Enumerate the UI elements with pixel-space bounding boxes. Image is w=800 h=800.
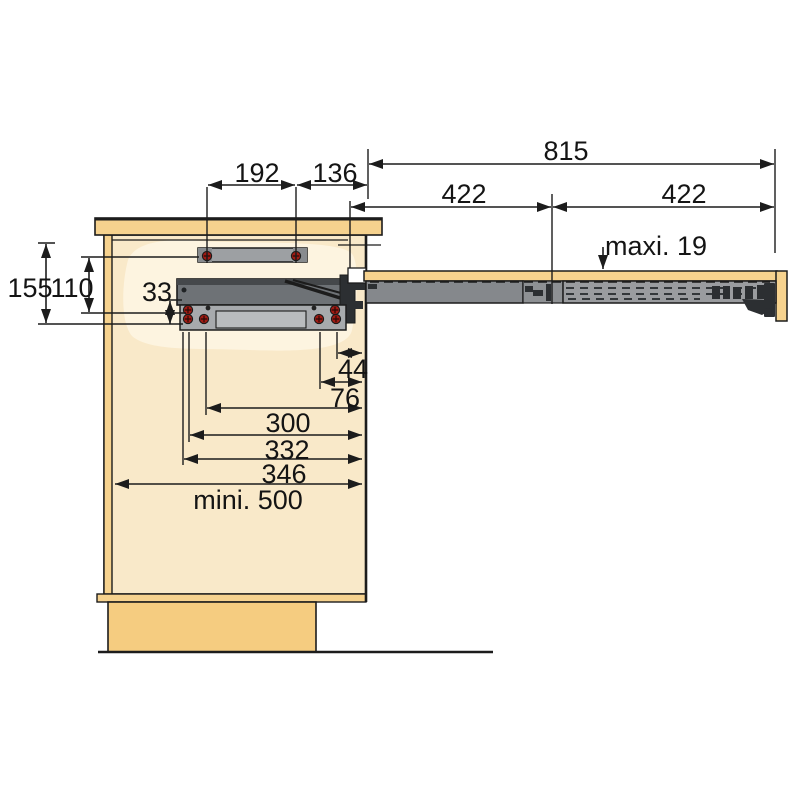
dim-110-label: 110	[50, 275, 93, 302]
screw-red	[199, 314, 208, 323]
dim-44-label: 44	[338, 356, 368, 383]
dim-815-label: 815	[543, 138, 588, 165]
screw-red	[183, 314, 192, 323]
dim-136-label: 136	[312, 160, 357, 187]
pull-out-assembly	[348, 268, 787, 321]
countertop	[95, 218, 382, 235]
inner-rail-top-band	[177, 279, 352, 285]
maxi-19-label: maxi. 19	[605, 233, 707, 260]
screw-red	[314, 314, 323, 323]
dim-346-label: 346	[261, 461, 306, 488]
technical-diagram: 192 136 815 422 422 maxi. 19 155 110 33 …	[0, 0, 800, 800]
dim-33-label: 33	[142, 279, 172, 306]
side-panel	[104, 235, 112, 594]
rail-start-tick	[368, 284, 377, 289]
dim-155-label: 155	[7, 275, 52, 302]
fixing-bar	[198, 248, 307, 262]
diagram-drawing	[0, 0, 800, 800]
bottom-panel	[97, 594, 366, 602]
connector-detail-1	[525, 286, 533, 292]
screw-black	[206, 306, 211, 311]
dim-300-label: 300	[265, 410, 310, 437]
front-tab-lower	[352, 301, 363, 309]
bracket-cutout	[216, 311, 306, 328]
dim-76-label: 76	[330, 385, 360, 412]
plinth	[108, 602, 316, 652]
dim-422-left-label: 422	[441, 181, 486, 208]
screw-red	[331, 314, 340, 323]
connector-detail-3	[546, 284, 551, 301]
tabletop-end-cap	[776, 271, 787, 321]
front-tab-upper	[352, 283, 365, 290]
dim-422-right-label: 422	[661, 181, 706, 208]
screw-black	[312, 306, 317, 311]
connector-detail-2	[533, 290, 543, 296]
screw-red	[330, 305, 339, 314]
rail-fixed-section	[366, 281, 523, 303]
dim-192-label: 192	[234, 160, 279, 187]
dim-500-label: mini. 500	[193, 487, 303, 514]
pull-out-tabletop	[364, 271, 777, 281]
rail-hole	[182, 288, 187, 293]
